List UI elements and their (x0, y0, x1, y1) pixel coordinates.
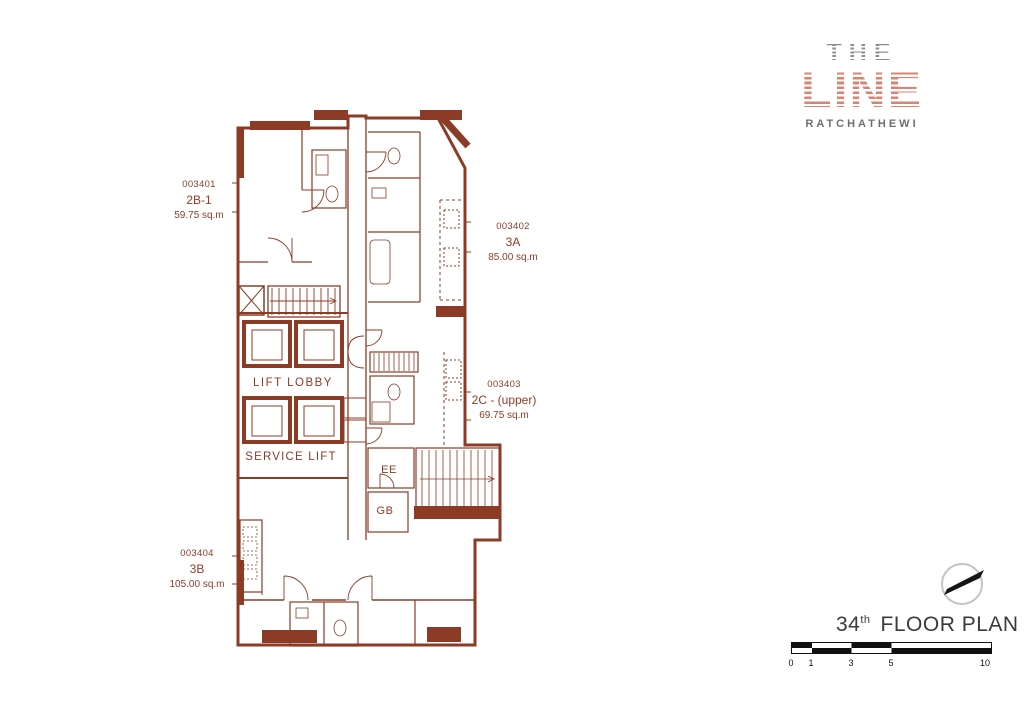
brand-logo: THE LINE RATCHATHEWI (772, 40, 952, 130)
gb-room-label: GB (370, 505, 400, 517)
floor-ordinal: th (860, 614, 870, 626)
unit-label-3b: 003404 3B 105.00 sq.m (137, 547, 257, 593)
floor-plan-title: 34thFLOOR PLAN (836, 613, 1024, 637)
ee-room-label: EE (374, 464, 404, 476)
north-indicator: N (936, 558, 1024, 614)
unit-area: 69.75 sq.m (444, 409, 564, 424)
lift-lobby-label: LIFT LOBBY (233, 377, 353, 389)
unit-name: 2C - (upper) (444, 392, 564, 409)
unit-area: 59.75 sq.m (139, 209, 259, 224)
core-small-rooms (344, 398, 366, 442)
unit-name: 3B (137, 561, 257, 578)
scale-bar-bottom-row (792, 648, 991, 653)
scale-tick-1: 1 (804, 658, 818, 668)
unit-id: 003404 (137, 547, 257, 561)
scale-bar: 0 1 3 5 10 (791, 642, 992, 654)
page: 003401 2B-1 59.75 sq.m 003402 3A 85.00 s… (0, 0, 1024, 711)
unit-label-3a: 003402 3A 85.00 sq.m (453, 220, 573, 266)
scale-tick-5: 5 (884, 658, 898, 668)
logo-word-line: LINE (772, 67, 952, 113)
unit-name: 2B-1 (139, 192, 259, 209)
unit-label-2c-upper: 003403 2C - (upper) 69.75 sq.m (444, 378, 564, 424)
floor-label: FLOOR PLAN (881, 613, 1019, 636)
scale-tick-10: 10 (978, 658, 992, 668)
plan-unit-2c (366, 352, 418, 444)
unit-id: 003403 (444, 378, 564, 392)
lobby-double-door (348, 336, 364, 368)
shaft-x-box (239, 286, 264, 315)
unit-name: 3A (453, 234, 573, 251)
scale-tick-3: 3 (844, 658, 858, 668)
scale-tick-0: 0 (784, 658, 798, 668)
lift-bank-lower (244, 398, 342, 442)
unit-id: 003402 (453, 220, 573, 234)
logo-subtitle: RATCHATHEWI (772, 118, 952, 130)
unit-label-2b1: 003401 2B-1 59.75 sq.m (139, 178, 259, 224)
plan-corridor-walls (348, 118, 366, 540)
lift-bank-upper (244, 322, 342, 366)
unit-area: 85.00 sq.m (453, 251, 573, 266)
floor-number: 34 (836, 613, 860, 636)
unit-id: 003401 (139, 178, 259, 192)
plan-stair-block (368, 448, 500, 532)
unit-area: 105.00 sq.m (137, 578, 257, 593)
north-arrow-icon (936, 558, 1024, 614)
plan-unit-3a (366, 132, 420, 346)
service-lift-label: SERVICE LIFT (231, 451, 351, 463)
